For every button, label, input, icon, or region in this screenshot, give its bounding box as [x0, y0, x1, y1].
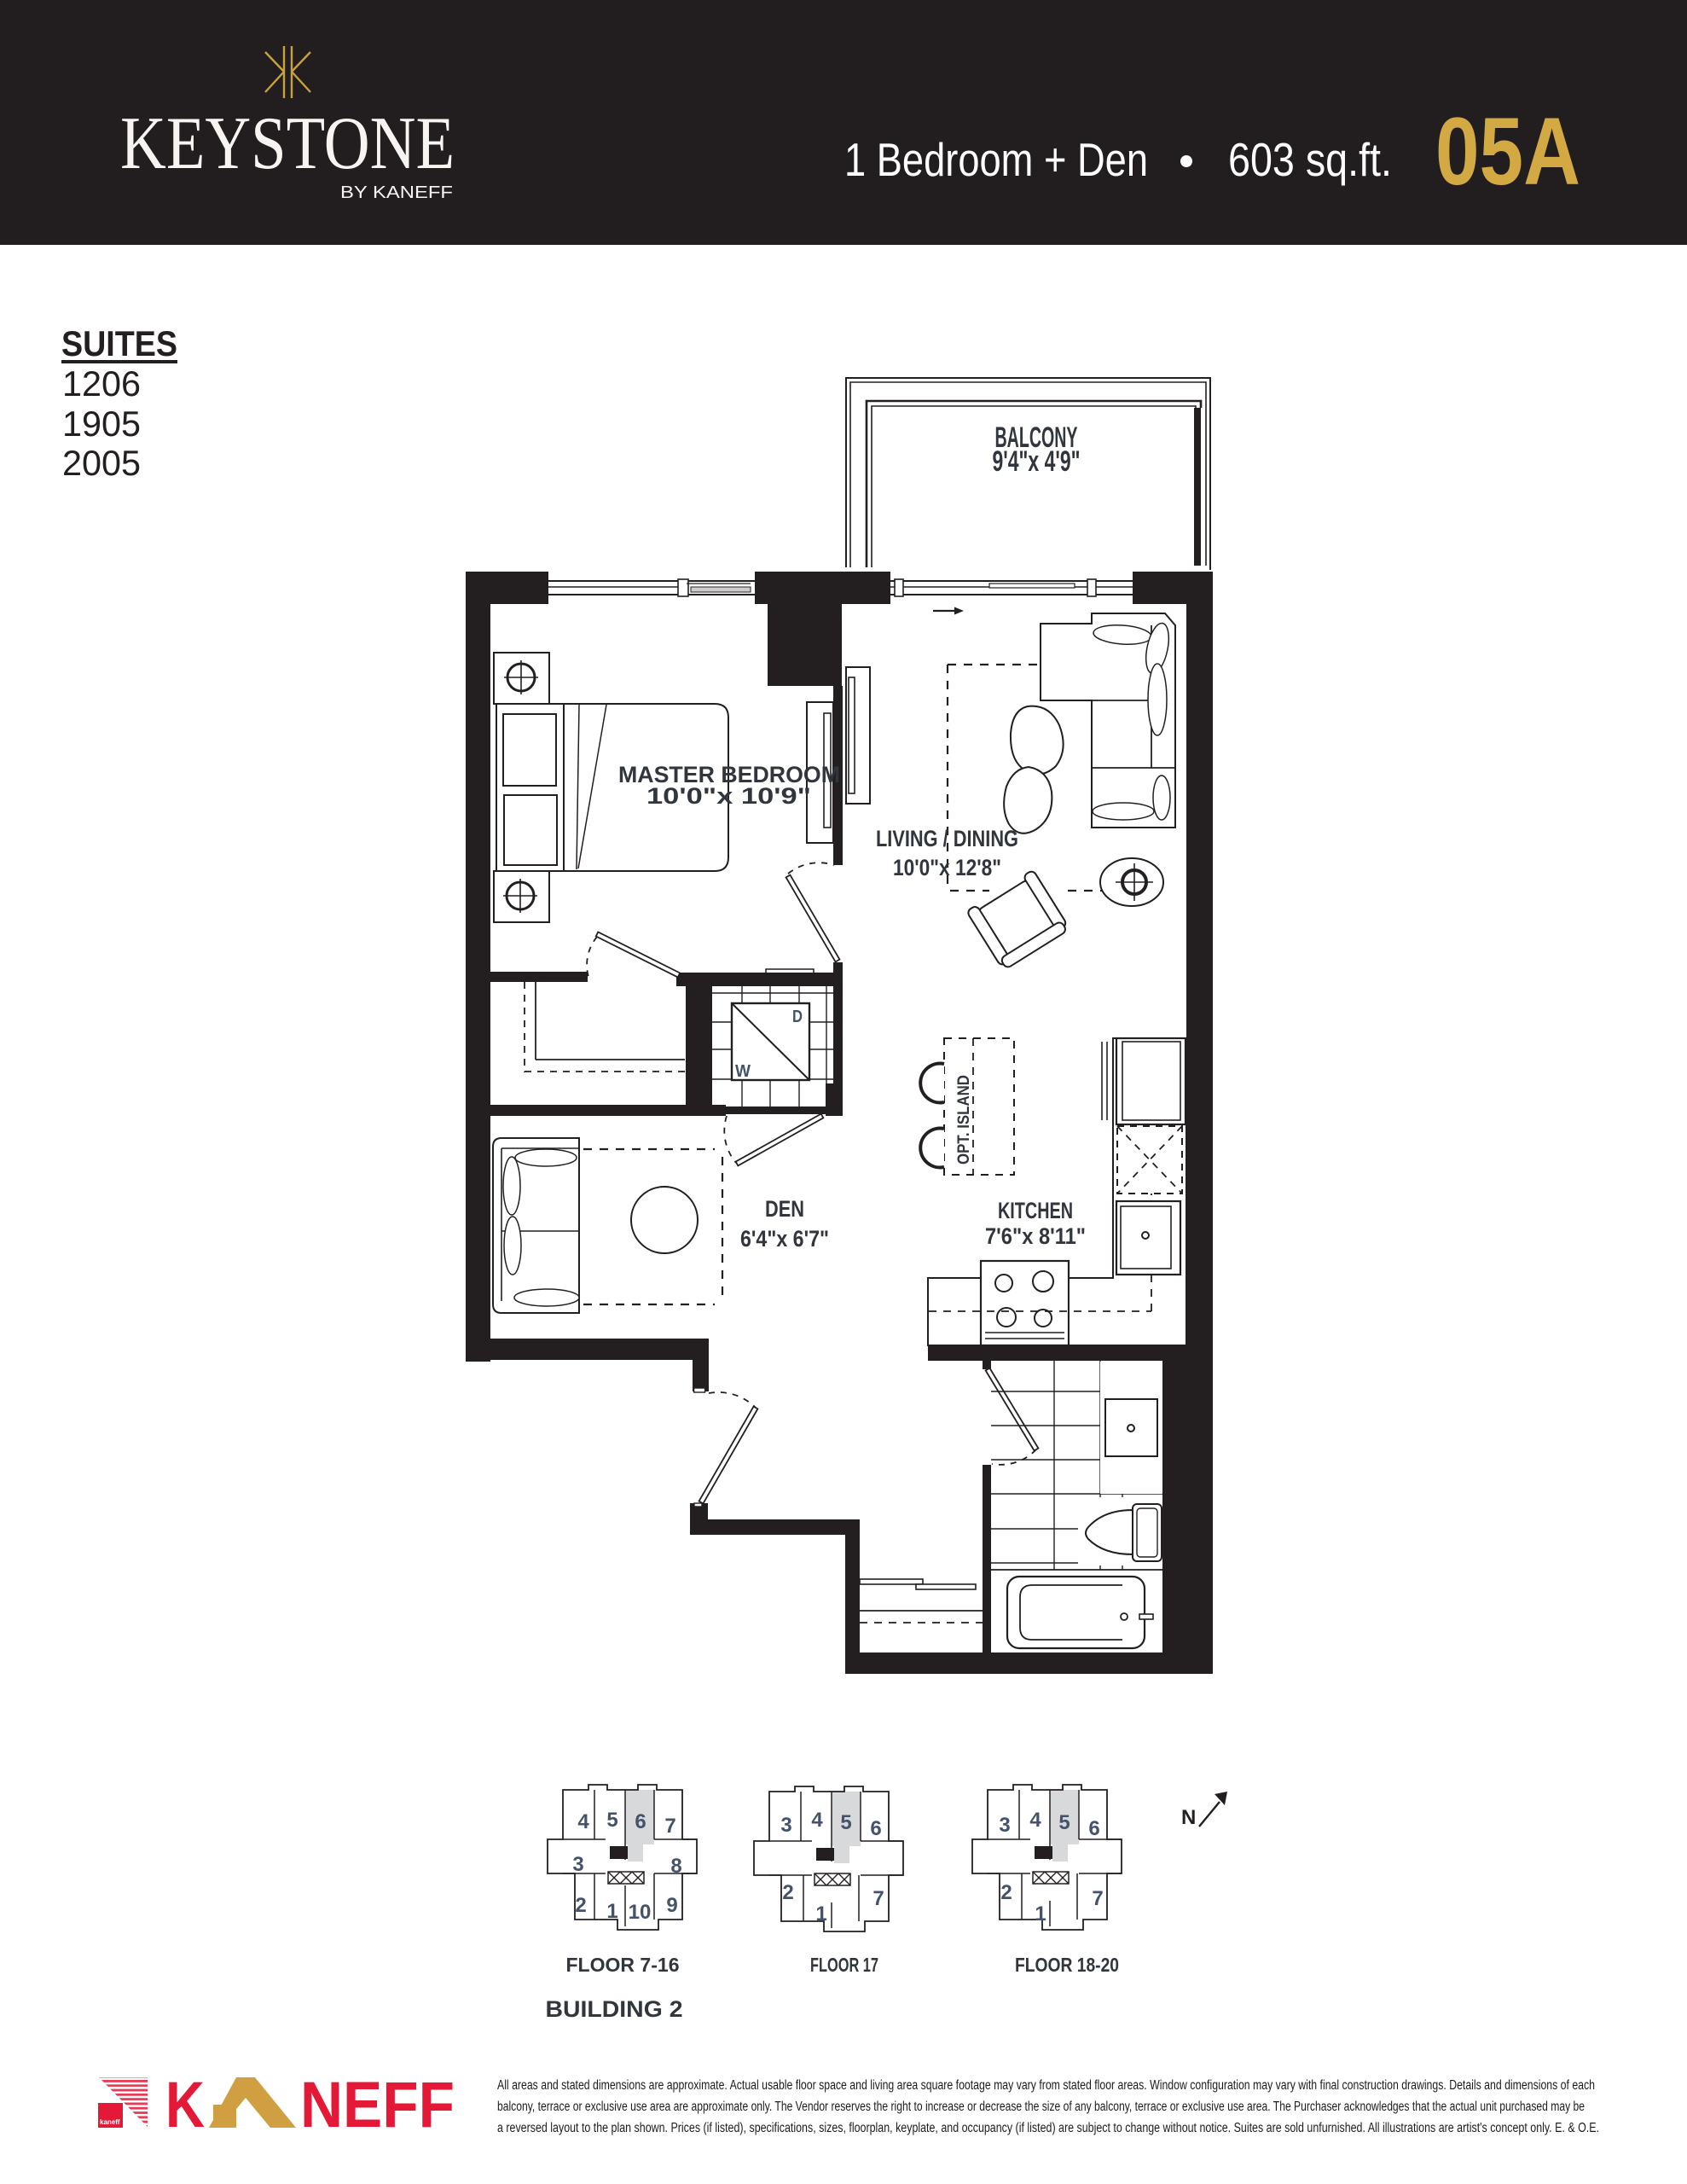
svg-text:10'0"x 10'9": 10'0"x 10'9": [646, 783, 811, 809]
svg-text:BY KANEFF: BY KANEFF: [340, 183, 453, 202]
svg-text:1206: 1206: [62, 363, 141, 404]
svg-text:7: 7: [1092, 1887, 1103, 1910]
svg-text:1905: 1905: [62, 404, 141, 444]
svg-text:K: K: [165, 2069, 205, 2141]
svg-text:4: 4: [1029, 1809, 1041, 1832]
svg-text:1: 1: [606, 1900, 617, 1923]
svg-text:10: 10: [629, 1901, 652, 1924]
svg-text:6: 6: [635, 1810, 646, 1833]
svg-text:3: 3: [999, 1814, 1010, 1837]
svg-text:FLOOR 7-16: FLOOR 7-16: [566, 1954, 680, 1976]
svg-text:6: 6: [870, 1817, 881, 1840]
svg-text:balcony, terrace or exclusive: balcony, terrace or exclusive use area a…: [497, 2100, 1585, 2114]
svg-text:SUITES: SUITES: [61, 323, 177, 363]
svg-text:2005: 2005: [62, 443, 141, 483]
svg-text:3: 3: [572, 1853, 583, 1876]
svg-text:W: W: [735, 1062, 751, 1081]
svg-text:All areas and stated dimension: All areas and stated dimensions are appr…: [497, 2078, 1595, 2093]
svg-text:3: 3: [780, 1814, 791, 1837]
svg-text:05A: 05A: [1435, 98, 1580, 205]
svg-text:8: 8: [670, 1855, 681, 1878]
svg-text:5: 5: [840, 1811, 851, 1834]
svg-text:4: 4: [811, 1809, 823, 1832]
svg-text:9'4"x 4'9": 9'4"x 4'9": [993, 445, 1081, 478]
svg-text:603 sq.ft.: 603 sq.ft.: [1228, 133, 1392, 186]
svg-text:7'6"x 8'11": 7'6"x 8'11": [985, 1223, 1086, 1249]
svg-text:FLOOR 17: FLOOR 17: [810, 1954, 878, 1976]
svg-text:2: 2: [1000, 1881, 1012, 1904]
svg-text:KEYSTONE: KEYSTONE: [120, 102, 455, 185]
svg-text:BUILDING 2: BUILDING 2: [546, 1996, 683, 2022]
svg-text:LIVING / DINING: LIVING / DINING: [876, 826, 1018, 851]
svg-text:1: 1: [815, 1902, 826, 1926]
svg-text:7: 7: [664, 1815, 675, 1838]
svg-text:10'0"x 12'8": 10'0"x 12'8": [893, 855, 1001, 880]
svg-text:FLOOR 18-20: FLOOR 18-20: [1015, 1954, 1119, 1976]
svg-text:1 Bedroom + Den: 1 Bedroom + Den: [844, 133, 1148, 186]
svg-text:NEFF: NEFF: [300, 2069, 455, 2141]
svg-text:DEN: DEN: [765, 1196, 804, 1222]
svg-text:1: 1: [1035, 1902, 1046, 1926]
svg-text:2: 2: [782, 1881, 793, 1904]
svg-text:N: N: [1181, 1806, 1196, 1829]
svg-text:9: 9: [666, 1894, 677, 1917]
svg-text:5: 5: [606, 1809, 617, 1832]
svg-text:2: 2: [575, 1894, 586, 1917]
svg-text:OPT. ISLAND: OPT. ISLAND: [955, 1075, 973, 1165]
svg-text:KITCHEN: KITCHEN: [998, 1198, 1073, 1223]
svg-text:a reversed layout to the plan: a reversed layout to the plan shown. Pri…: [497, 2121, 1599, 2135]
svg-text:7: 7: [872, 1887, 884, 1910]
svg-text:5: 5: [1058, 1811, 1070, 1834]
svg-text:6: 6: [1088, 1817, 1099, 1840]
svg-text:4: 4: [577, 1810, 589, 1833]
svg-text:6'4"x 6'7": 6'4"x 6'7": [740, 1226, 829, 1252]
svg-text:D: D: [792, 1008, 803, 1026]
svg-text:kaneff: kaneff: [100, 2118, 120, 2126]
